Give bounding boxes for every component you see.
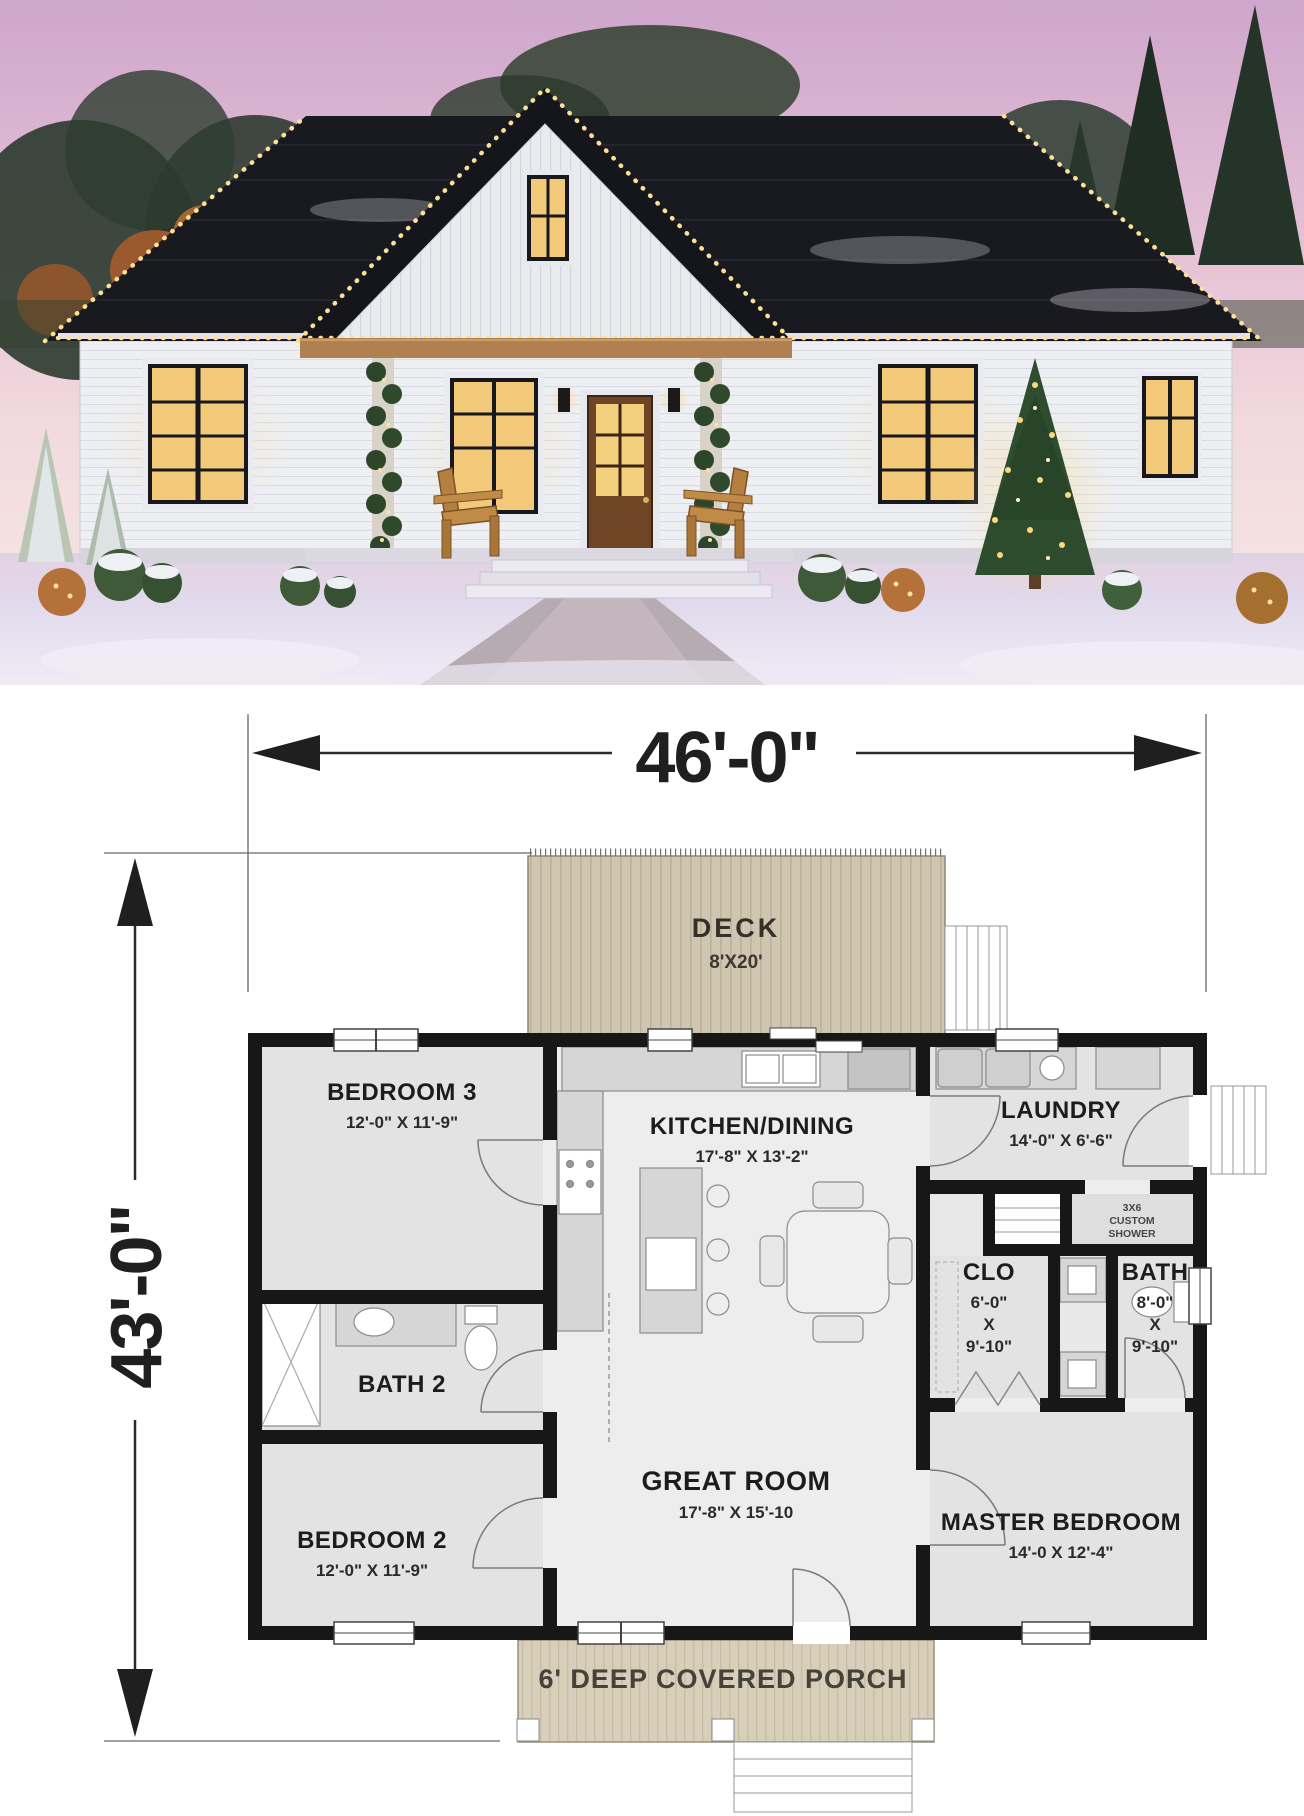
window bbox=[648, 1029, 692, 1051]
great-room-dims: 17'-8" X 15'-10 bbox=[679, 1503, 793, 1522]
bath-label: BATH bbox=[1122, 1259, 1189, 1286]
bedroom2-dims: 12'-0" X 11'-9" bbox=[316, 1561, 428, 1580]
exterior-photo bbox=[0, 0, 1304, 696]
shower-note-1: 3X6 bbox=[1123, 1202, 1142, 1214]
laundry-label: LAUNDRY bbox=[1001, 1097, 1121, 1124]
clo-dim2: X bbox=[983, 1315, 995, 1334]
porch-post bbox=[912, 1719, 934, 1741]
porch-post bbox=[712, 1719, 734, 1741]
gable-window bbox=[522, 170, 574, 266]
hall-closet bbox=[995, 1194, 1060, 1244]
front-steps bbox=[466, 560, 772, 598]
bedroom2-label: BEDROOM 2 bbox=[297, 1527, 447, 1554]
width-dimension: 46'-0" bbox=[635, 718, 818, 798]
window bbox=[1022, 1622, 1090, 1644]
laundry-fixtures bbox=[936, 1047, 1160, 1089]
window bbox=[334, 1029, 418, 1051]
bath-dim3: 9'-10" bbox=[1132, 1337, 1178, 1356]
front-door-opening bbox=[793, 1622, 850, 1644]
clo-dim3: 9'-10" bbox=[966, 1337, 1012, 1356]
deck-dims: 8'X20' bbox=[709, 952, 762, 973]
laundry-door-opening bbox=[1189, 1095, 1211, 1167]
window bbox=[334, 1622, 414, 1644]
front-door bbox=[580, 390, 660, 560]
deck: DECK 8'X20' bbox=[528, 852, 1007, 1036]
plan-canvas: DECK 8'X20' 6' DEEP COVERED PORCH bbox=[0, 0, 1304, 1816]
laundry-dims: 14'-0" X 6'-6" bbox=[1009, 1131, 1113, 1150]
window bbox=[996, 1029, 1058, 1051]
master-dims: 14'-0 X 12'-4" bbox=[1009, 1543, 1114, 1562]
window-far-right bbox=[1138, 372, 1202, 482]
porch-post bbox=[517, 1719, 539, 1741]
porch-steps bbox=[734, 1742, 912, 1812]
porch-label: 6' DEEP COVERED PORCH bbox=[538, 1664, 907, 1694]
great-room-label: GREAT ROOM bbox=[642, 1466, 831, 1496]
clo-dim1: 6'-0" bbox=[971, 1293, 1008, 1312]
kitchen-dims: 17'-8" X 13'-2" bbox=[695, 1147, 808, 1166]
laundry-exterior-steps bbox=[1211, 1086, 1266, 1174]
master-label: MASTER BEDROOM bbox=[941, 1509, 1181, 1536]
window bbox=[578, 1622, 664, 1644]
deck-side-steps bbox=[945, 926, 1007, 1030]
house-plan-sheet: DECK 8'X20' 6' DEEP COVERED PORCH bbox=[0, 0, 1304, 1816]
bedroom3-dims: 12'-0" X 11'-9" bbox=[346, 1113, 458, 1132]
bath-dim1: 8'-0" bbox=[1137, 1293, 1174, 1312]
bath2-label: BATH 2 bbox=[358, 1371, 446, 1398]
deck-label: DECK bbox=[692, 913, 781, 943]
height-dimension: 43'-0" bbox=[97, 1205, 177, 1388]
bedroom3-label: BEDROOM 3 bbox=[327, 1079, 477, 1106]
kitchen-label: KITCHEN/DINING bbox=[650, 1113, 854, 1140]
shower-note-3: SHOWER bbox=[1108, 1228, 1156, 1240]
clo-label: CLO bbox=[963, 1259, 1015, 1286]
shower-note-2: CUSTOM bbox=[1109, 1215, 1155, 1227]
window bbox=[1189, 1268, 1211, 1324]
bath-dim2: X bbox=[1149, 1315, 1161, 1334]
floor-plan: DECK 8'X20' 6' DEEP COVERED PORCH bbox=[0, 685, 1304, 1816]
